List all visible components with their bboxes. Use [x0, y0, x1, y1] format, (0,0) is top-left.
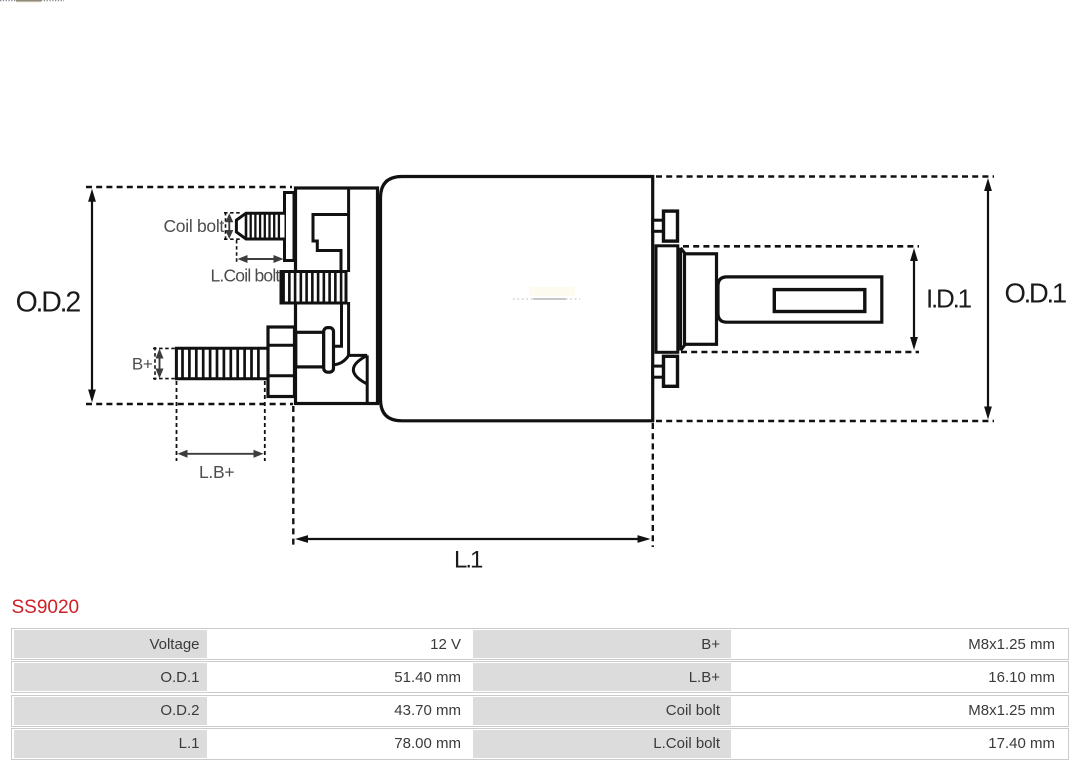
svg-text:O.D.2: O.D.2 [16, 287, 81, 319]
svg-text:L.Coil bolt: L.Coil bolt [210, 266, 280, 286]
svg-text:L.B+: L.B+ [199, 462, 234, 482]
svg-text:L.1: L.1 [454, 547, 483, 574]
svg-text:I.D.1: I.D.1 [926, 284, 972, 314]
svg-text:B+: B+ [132, 355, 153, 374]
svg-text:O.D.1: O.D.1 [1005, 278, 1066, 309]
svg-text:Coil bolt: Coil bolt [163, 216, 224, 236]
